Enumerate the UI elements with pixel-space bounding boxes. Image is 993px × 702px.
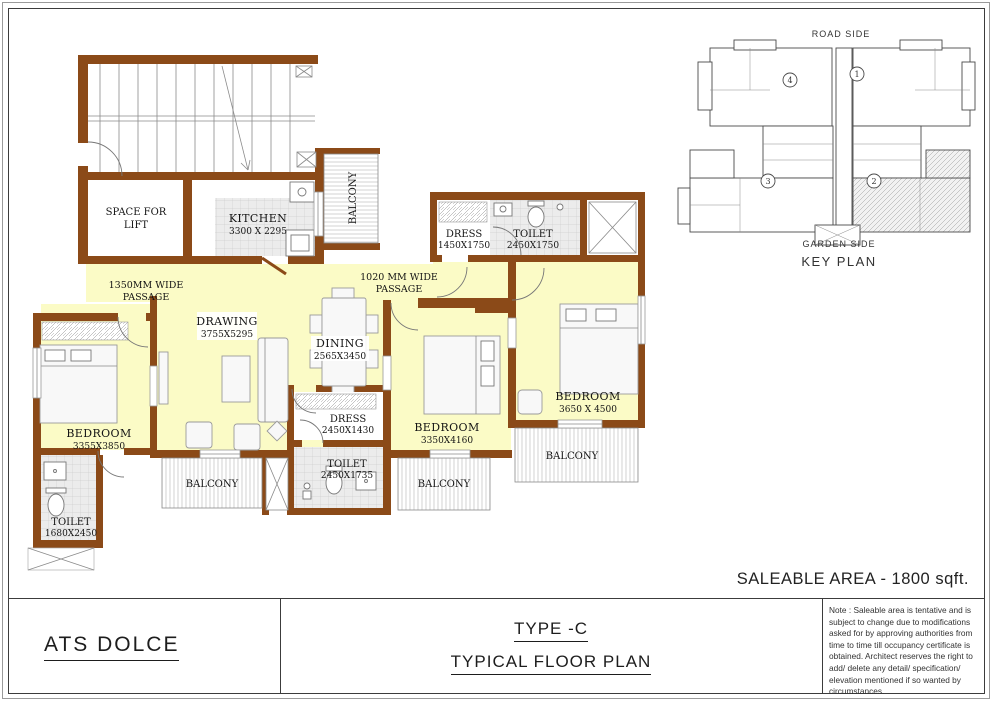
floor-plan-svg: SPACE FOR LIFT KITCHEN 3300 X 2295 BALCO… [0, 0, 993, 702]
plan-type-label: TYPE -C [514, 619, 588, 642]
road-side-label: ROAD SIDE [812, 29, 871, 39]
bed-symbol [40, 345, 117, 423]
bedroom2-dims: 3350X4160 [421, 436, 473, 446]
room-lift: SPACE FOR LIFT [88, 180, 183, 256]
passage1-label-line2: PASSAGE [123, 292, 170, 303]
balcony-bottom-left: BALCONY [162, 458, 262, 508]
toilet3-dims: 1680X2450 [45, 529, 97, 539]
unit2-number: 2 [871, 177, 876, 186]
room-toilet3: TOILET 1680X2450 [41, 455, 97, 540]
passage2-label-line1: 1020 MM WIDE [360, 272, 438, 283]
balcony-top-right: BALCONY [324, 154, 378, 243]
unit3-number: 3 [765, 177, 770, 186]
balcony-mid-label: BALCONY [418, 479, 471, 490]
toilet3-label: TOILET [51, 517, 91, 528]
saleable-area-text: SALEABLE AREA - 1800 sqft. [737, 570, 969, 589]
bedroom3-dims: 3650 X 4500 [559, 405, 617, 415]
passage2-label-line2: PASSAGE [376, 284, 423, 295]
room-dress1: DRESS 1450X1750 [437, 200, 490, 255]
dress1-dims: 1450X1750 [438, 241, 490, 251]
title-block-title-cell: TYPE -C TYPICAL FLOOR PLAN [280, 599, 823, 694]
balcony-top-label: BALCONY [348, 171, 359, 224]
shaft-between-balconies [266, 458, 288, 510]
balcony-bottom-mid: BALCONY [398, 458, 490, 510]
bedroom1-label: BEDROOM [66, 427, 131, 440]
dress2-dims: 2450X1430 [322, 426, 374, 436]
key-plan-title: KEY PLAN [801, 254, 876, 269]
toilet2-dims: 2450X1735 [321, 471, 373, 481]
toilet1-label: TOILET [513, 229, 553, 240]
unit1-number: 1 [854, 70, 859, 79]
bed-symbol [560, 304, 638, 394]
key-plan: ROAD SIDE [678, 29, 975, 269]
room-toilet2: TOILET 2450X1735 [294, 447, 383, 508]
kitchen-label: KITCHEN [229, 212, 287, 225]
title-block-project-cell: ATS DOLCE [8, 599, 281, 694]
passage1-label-line1: 1350MM WIDE [109, 280, 184, 291]
kitchen-dims: 3300 X 2295 [229, 227, 287, 237]
toilet1-dims: 2450X1750 [507, 241, 559, 251]
drawing-label: DRAWING [196, 315, 257, 328]
room-toilet1: TOILET 2450X1750 [490, 200, 580, 255]
canopy-hatch [28, 548, 94, 570]
bedroom1-dims: 3355X3850 [73, 442, 125, 452]
main-floor-plan: SPACE FOR LIFT KITCHEN 3300 X 2295 BALCO… [28, 55, 645, 570]
balcony-right-label: BALCONY [546, 451, 599, 462]
plan-title-label: TYPICAL FLOOR PLAN [451, 652, 652, 675]
staircase [88, 64, 315, 172]
balcony-left-label: BALCONY [186, 479, 239, 490]
title-block-note-cell: Note : Saleable area is tentative and is… [822, 599, 985, 694]
room-dress2: DRESS 2450X1430 [294, 392, 383, 440]
toilet2-label: TOILET [327, 459, 367, 470]
key-plan-building [678, 40, 975, 245]
dining-label: DINING [316, 337, 364, 350]
unit4-number: 4 [787, 76, 792, 85]
garden-side-label: GARDEN SIDE [802, 239, 875, 249]
bedroom2-label: BEDROOM [414, 421, 479, 434]
dress1-label: DRESS [446, 229, 483, 240]
balcony-bottom-right: BALCONY [515, 428, 638, 482]
drawing-sheet: SPACE FOR LIFT KITCHEN 3300 X 2295 BALCO… [0, 0, 993, 702]
disclaimer-note: Note : Saleable area is tentative and is… [829, 605, 978, 698]
lift-label-line2: LIFT [124, 220, 149, 231]
title-block: ATS DOLCE TYPE -C TYPICAL FLOOR PLAN Not… [8, 598, 985, 694]
dining-dims: 2565X3450 [314, 352, 366, 362]
lift-label-line1: SPACE FOR [106, 207, 167, 218]
dress2-label: DRESS [330, 414, 367, 425]
project-name: ATS DOLCE [44, 633, 179, 661]
bedroom3-label: BEDROOM [555, 390, 620, 403]
shaft-main [589, 202, 636, 253]
drawing-dims: 3755X5295 [201, 330, 253, 340]
bed-symbol [424, 336, 500, 414]
